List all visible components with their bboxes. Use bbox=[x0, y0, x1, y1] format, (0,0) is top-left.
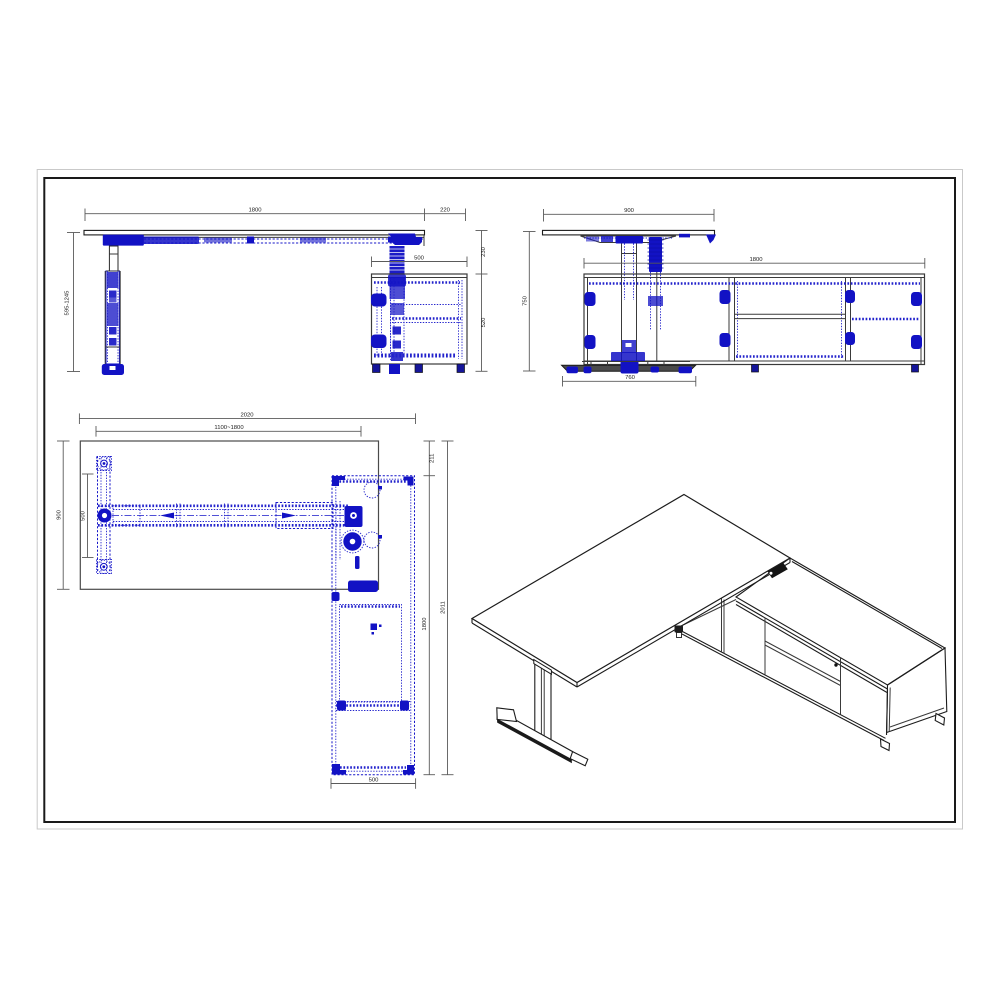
svg-text:2011: 2011 bbox=[441, 601, 447, 614]
svg-text:595-1245: 595-1245 bbox=[65, 290, 71, 316]
svg-text:1800: 1800 bbox=[749, 257, 763, 263]
svg-text:760: 760 bbox=[625, 375, 636, 381]
svg-text:220: 220 bbox=[440, 208, 451, 214]
svg-text:500: 500 bbox=[414, 255, 425, 261]
svg-text:211: 211 bbox=[430, 454, 436, 463]
svg-text:500: 500 bbox=[81, 510, 87, 521]
svg-text:1800: 1800 bbox=[248, 208, 262, 214]
svg-text:520: 520 bbox=[481, 317, 487, 328]
svg-text:1800: 1800 bbox=[422, 617, 428, 631]
svg-text:230: 230 bbox=[481, 246, 487, 257]
svg-text:900: 900 bbox=[624, 208, 635, 214]
svg-text:750: 750 bbox=[523, 295, 529, 306]
svg-text:1100~1800: 1100~1800 bbox=[214, 425, 244, 431]
svg-text:900: 900 bbox=[56, 509, 62, 520]
svg-text:2020: 2020 bbox=[240, 412, 254, 418]
svg-text:500: 500 bbox=[369, 777, 380, 783]
